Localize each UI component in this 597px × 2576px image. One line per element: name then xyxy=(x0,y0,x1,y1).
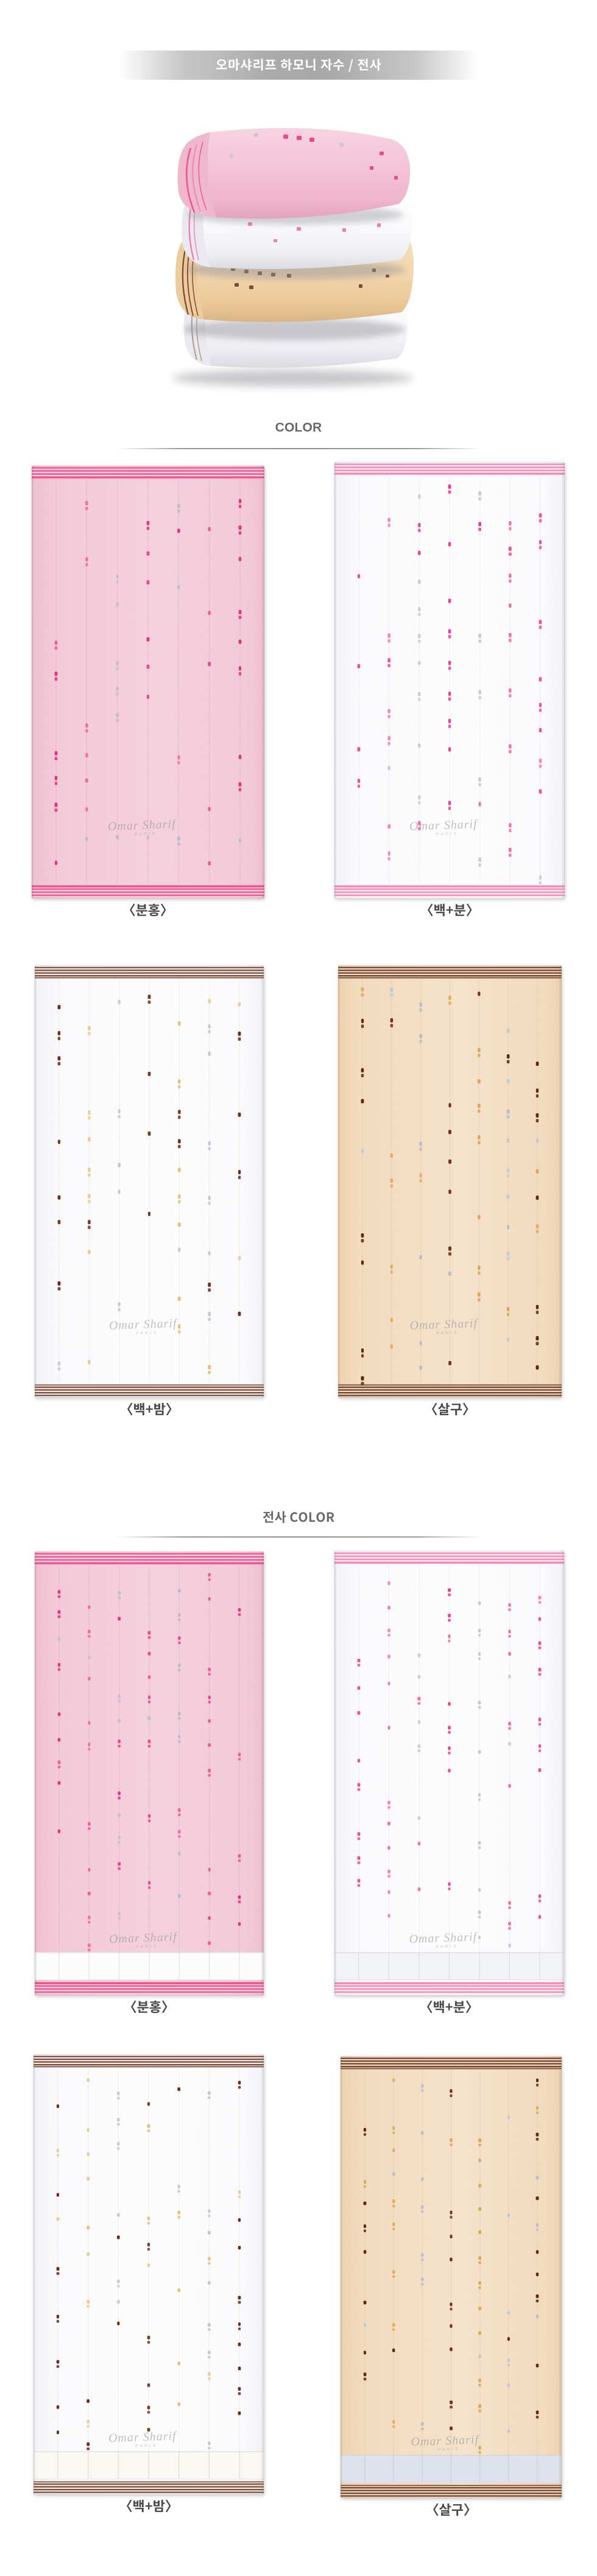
svg-text:PARIS: PARIS xyxy=(135,2443,158,2448)
svg-text:Omar Sharif: Omar Sharif xyxy=(109,1930,178,1946)
svg-text:PARIS: PARIS xyxy=(437,2447,460,2452)
svg-text:Omar Sharif: Omar Sharif xyxy=(109,1317,178,1332)
svg-text:PARIS: PARIS xyxy=(436,1944,458,1949)
svg-text:Omar Sharif: Omar Sharif xyxy=(409,817,479,833)
svg-text:Omar Sharif: Omar Sharif xyxy=(409,1930,478,1946)
svg-text:PARIS: PARIS xyxy=(136,1944,158,1949)
svg-text:Omar Sharif: Omar Sharif xyxy=(409,1317,479,1332)
svg-text:Omar Sharif: Omar Sharif xyxy=(411,2433,480,2449)
svg-text:PARIS: PARIS xyxy=(436,831,459,836)
svg-text:PARIS: PARIS xyxy=(136,1331,158,1335)
svg-text:Omar Sharif: Omar Sharif xyxy=(108,817,177,833)
svg-text:PARIS: PARIS xyxy=(436,1331,459,1335)
svg-text:Omar Sharif: Omar Sharif xyxy=(108,2429,178,2445)
svg-text:PARIS: PARIS xyxy=(135,831,157,836)
